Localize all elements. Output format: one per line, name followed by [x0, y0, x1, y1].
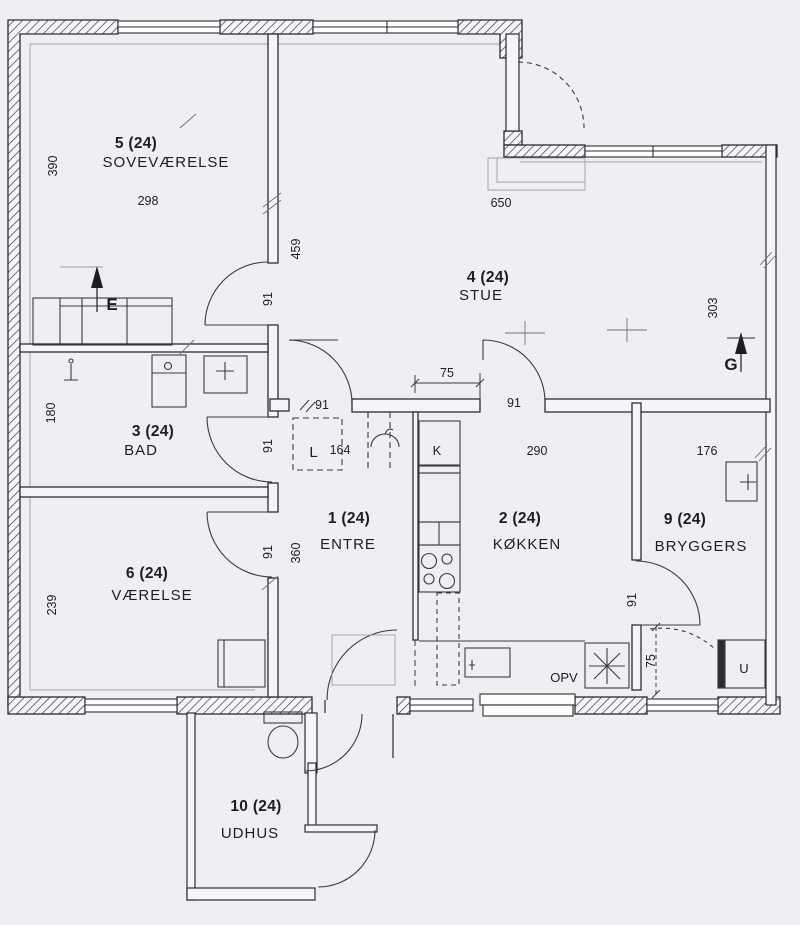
wall-bath-hall-lower: [268, 483, 278, 512]
wall-hall-living: [352, 399, 480, 412]
marker-l: L: [309, 444, 318, 461]
dim-living-width: 650: [491, 196, 512, 210]
bedroom-wardrobe: [33, 298, 172, 345]
kitchen-stove: [419, 545, 460, 592]
hall-coat-rail: [371, 429, 399, 447]
section-markers: [91, 266, 755, 372]
room1-name: ENTRE: [320, 536, 376, 553]
door-udhus-annex: [318, 830, 375, 887]
room6-number: 6 (24): [126, 565, 168, 582]
room2-number: 2 (24): [499, 510, 541, 527]
kitchen-sink-unit: [465, 648, 510, 677]
kitchen-cabinets: [419, 421, 460, 545]
door-front-entrance: [327, 630, 397, 700]
door-kitchen-utility: [636, 561, 700, 625]
utility-washing-machine: [726, 462, 757, 501]
wall-kitchen-hall: [413, 412, 418, 640]
udhus-wall-left: [187, 713, 195, 900]
room9-number: 9 (24): [664, 511, 706, 528]
window-room6-bottom: [85, 699, 177, 712]
dim-hall-depth: 360: [289, 543, 303, 564]
wall-bottom-1: [8, 697, 85, 714]
room9-name: BRYGGERS: [655, 538, 748, 555]
wall-right: [766, 145, 776, 705]
window-living-top: [313, 21, 458, 33]
wall-hall-living-jamb: [270, 399, 289, 411]
room1-number: 1 (24): [328, 510, 370, 527]
wall-living-south: [545, 399, 770, 412]
terrace-door-bottom: [480, 694, 575, 716]
e-arrow: [91, 266, 103, 312]
dim-door-bath: 91: [261, 439, 275, 453]
door-living-kitchen: [483, 340, 545, 402]
dim-utility-width: 176: [697, 444, 718, 458]
room4-number: 4 (24): [467, 269, 509, 286]
udhus-walls: [187, 700, 393, 900]
window-living-right: [585, 146, 722, 157]
windows: [85, 21, 722, 716]
dim-door-room6: 91: [261, 545, 275, 559]
wall-bedroom-living: [268, 34, 278, 263]
dim-door-bedroom: 91: [261, 292, 275, 306]
wall-entry-step: [506, 34, 519, 131]
room6-desk: [218, 640, 265, 687]
dim-bedroom-depth: 390: [46, 156, 60, 177]
room10-number: 10 (24): [230, 798, 281, 815]
front-door-mat: [332, 635, 395, 685]
door-bedroom: [205, 262, 268, 325]
udhus-toilet: [264, 712, 302, 758]
door-hall-living: [289, 340, 352, 404]
marker-k: K: [433, 443, 442, 458]
marker-g: G: [724, 355, 737, 374]
room2-name: KØKKEN: [493, 536, 562, 553]
porch-step-outline: [488, 158, 585, 190]
exterior-walls: [8, 20, 780, 714]
door-utility-back: [650, 628, 716, 650]
room5-name: SOVEVÆRELSE: [103, 154, 230, 171]
window-bedroom-top: [118, 21, 220, 33]
floorplan-drawing: 5 (24) SOVEVÆRELSE 4 (24) STUE 3 (24) BA…: [0, 0, 800, 925]
dim-utility-door: 75: [644, 654, 658, 668]
living-center-marks: [505, 318, 647, 345]
udhus-wall-bottom: [187, 888, 315, 900]
room6-name: VÆRELSE: [111, 587, 192, 604]
wall-top-middle: [220, 20, 313, 34]
kitchen-star-unit: [585, 643, 629, 688]
door-room6: [207, 512, 272, 577]
room10-name: UDHUS: [221, 825, 279, 842]
marker-e: E: [106, 295, 117, 314]
wall-entry-left: [504, 145, 585, 157]
wall-entry-jamb: [504, 131, 522, 145]
dim-91-hall-ticks: [300, 400, 315, 412]
dim-bath-depth: 180: [44, 403, 58, 424]
dim-bedroom-wall: 459: [289, 239, 303, 260]
dim-hall-closet: 164: [330, 443, 351, 457]
marker-u: U: [739, 661, 748, 676]
wall-room6-hall: [268, 578, 278, 697]
hall-closet-dashed: [293, 412, 390, 470]
bath-floor-drain: [64, 359, 78, 380]
dim-living-depth: 303: [706, 298, 720, 319]
window-utility-bottom: [647, 699, 718, 711]
kitchen-cabinet-dashed: [437, 593, 459, 685]
floorplan-page: 5 (24) SOVEVÆRELSE 4 (24) STUE 3 (24) BA…: [0, 0, 800, 925]
wall-kitchen-utility-lower: [632, 625, 641, 690]
window-kitchen-bottom: [410, 699, 473, 711]
dim-kitchen-width: 290: [527, 444, 548, 458]
inner-face-line-top-left: [30, 44, 500, 690]
door-main-entry: [518, 62, 584, 128]
wall-top-left-and-left: [8, 20, 118, 706]
wall-kitchen-utility-upper: [632, 403, 641, 560]
room5-number: 5 (24): [115, 135, 157, 152]
bath-washing-machine: [204, 356, 247, 393]
dim-door-utility: 91: [625, 593, 639, 607]
dim-room6-depth: 239: [45, 595, 59, 616]
wall-bottom-4: [575, 697, 647, 714]
room4-name: STUE: [459, 287, 503, 304]
udhus-annex-wall: [305, 825, 377, 832]
room3-number: 3 (24): [132, 423, 174, 440]
dim-door-kitchen: 91: [507, 396, 521, 410]
dim-door-hall: 91: [315, 398, 329, 412]
dim-passage: 75: [440, 366, 454, 380]
dim-bedroom-width: 298: [138, 194, 159, 208]
room3-name: BAD: [124, 442, 158, 459]
udhus-wall-right-mid: [308, 763, 316, 826]
wall-bath-room6: [20, 487, 268, 497]
marker-opv: OPV: [550, 670, 578, 685]
wall-bottom-3: [397, 697, 410, 714]
bath-sink: [152, 355, 186, 407]
